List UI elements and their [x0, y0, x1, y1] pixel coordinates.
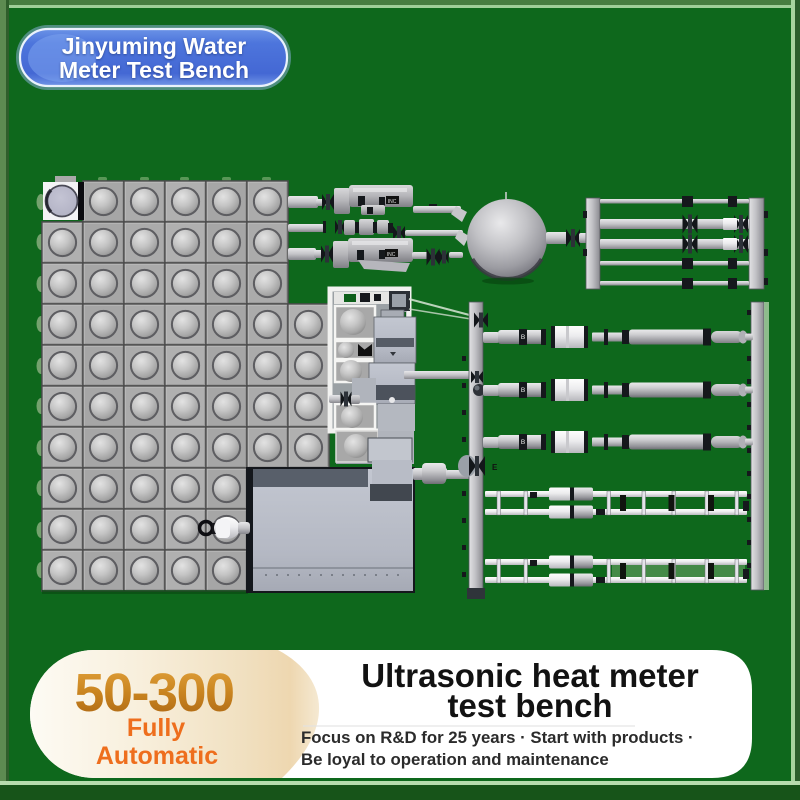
svg-text:Automatic: Automatic [96, 742, 218, 770]
svg-text:Jinyuming Water: Jinyuming Water [62, 33, 246, 59]
svg-text:Focus on R&D for 25 years · St: Focus on R&D for 25 years · Start with p… [301, 728, 694, 747]
svg-text:Be loyal to operation and main: Be loyal to operation and maintenance [301, 750, 609, 769]
svg-text:INC: INC [387, 252, 396, 258]
svg-text:test bench: test bench [447, 687, 612, 724]
svg-text:B: B [521, 387, 525, 394]
svg-text:Fully: Fully [127, 714, 185, 742]
svg-text:INC: INC [388, 199, 397, 205]
svg-text:B: B [521, 334, 525, 341]
svg-text:B: B [521, 439, 525, 446]
svg-text:Meter Test Bench: Meter Test Bench [59, 57, 249, 83]
svg-text:E: E [492, 463, 498, 472]
